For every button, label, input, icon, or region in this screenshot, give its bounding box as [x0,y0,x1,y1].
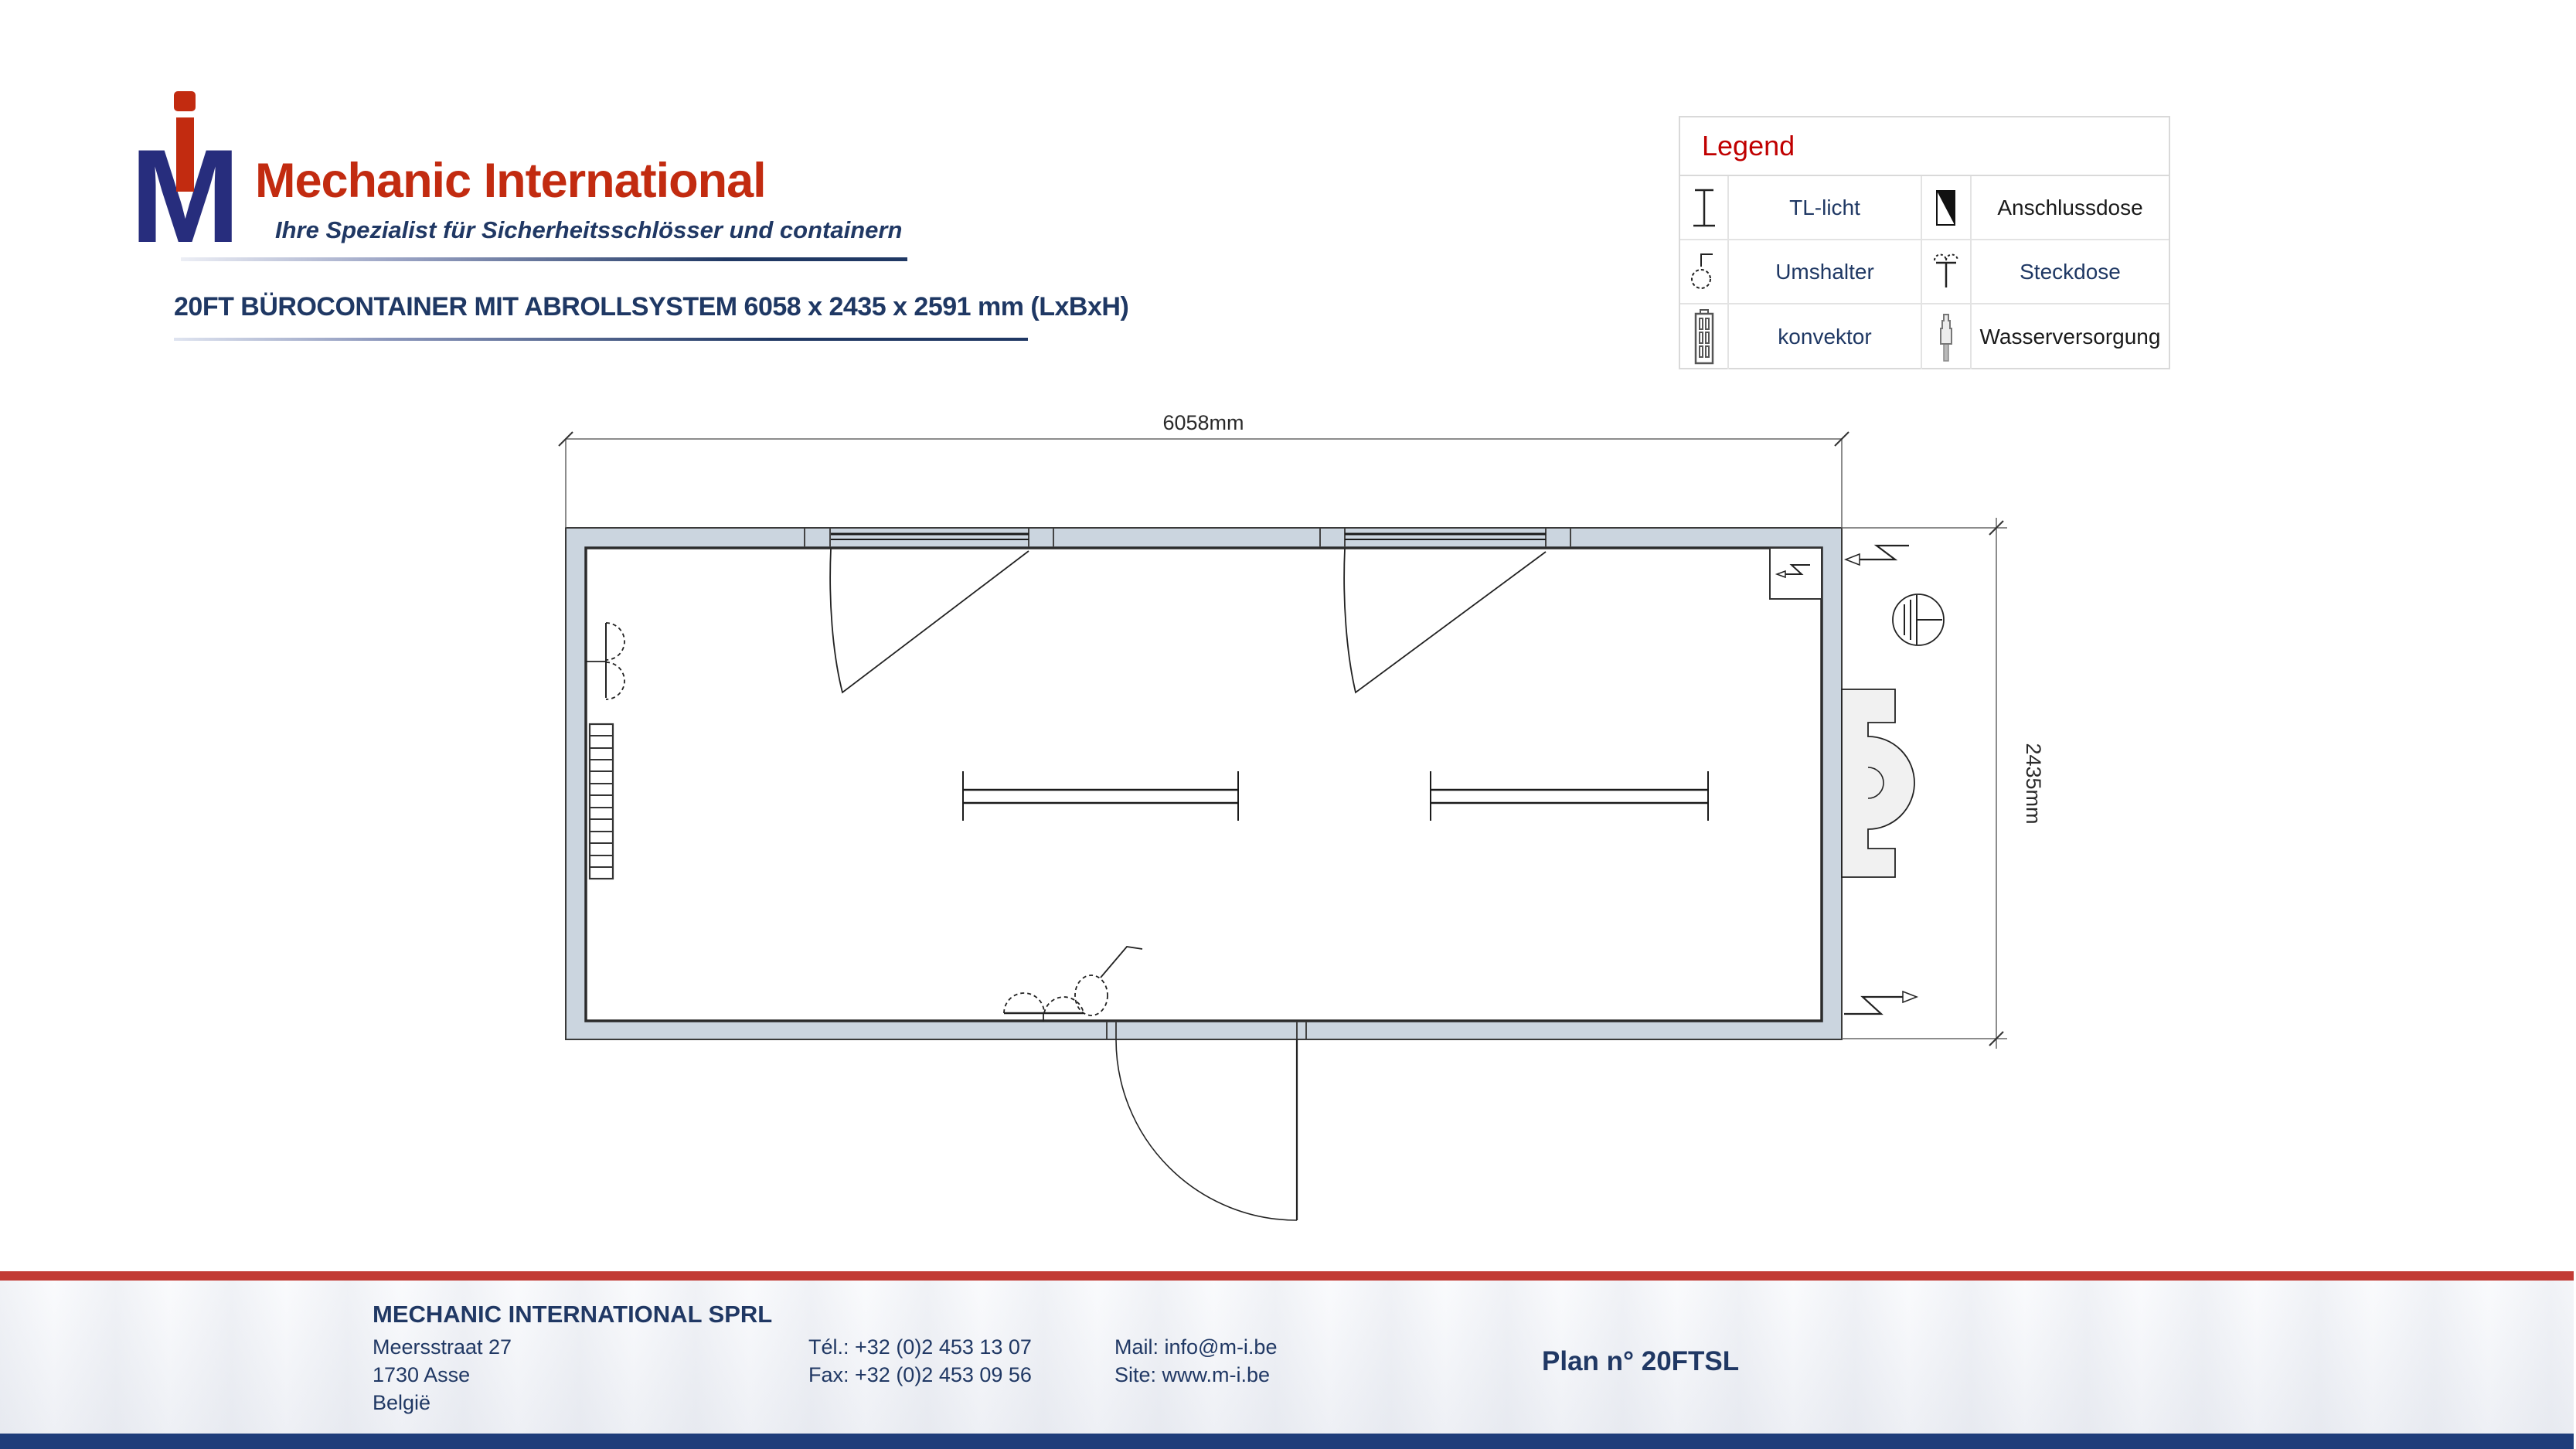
footer-blue-bar [0,1434,2574,1449]
plan-sheet: M Mechanic International Ihre Spezialist… [0,0,2576,1449]
floor-plan: 6058mm 2435mm [0,0,2576,1449]
supply-arrow-bottom [1844,992,1917,1014]
konvektor-symbol [590,724,613,879]
footer-site: Site: www.m-i.be [1114,1363,1270,1387]
container-walls [566,528,1842,1039]
supply-arrow-top [1846,546,1909,565]
dimension-length-label: 6058mm [1162,411,1244,434]
footer-red-bar [0,1271,2574,1281]
footer-address-line3: België [373,1391,430,1415]
lock-mechanism [1842,689,1914,877]
ground-symbol [1893,594,1944,645]
logo-i-stem [176,117,194,192]
footer-mail: Mail: info@m-i.be [1114,1335,1277,1359]
footer-company-name: MECHANIC INTERNATIONAL SPRL [373,1301,772,1328]
footer-phone: Tél.: +32 (0)2 453 13 07 [808,1335,1032,1359]
footer-fax: Fax: +32 (0)2 453 09 56 [808,1363,1032,1387]
dimension-length: 6058mm [559,411,1849,528]
junction-box [1770,548,1822,599]
footer-plan-number: Plan n° 20FTSL [1542,1346,1739,1377]
dimension-width-label: 2435mm [2022,743,2045,824]
footer-address-line1: Meersstraat 27 [373,1335,512,1359]
entrance-door [1107,1022,1306,1220]
footer-address-line2: 1730 Asse [373,1363,470,1387]
